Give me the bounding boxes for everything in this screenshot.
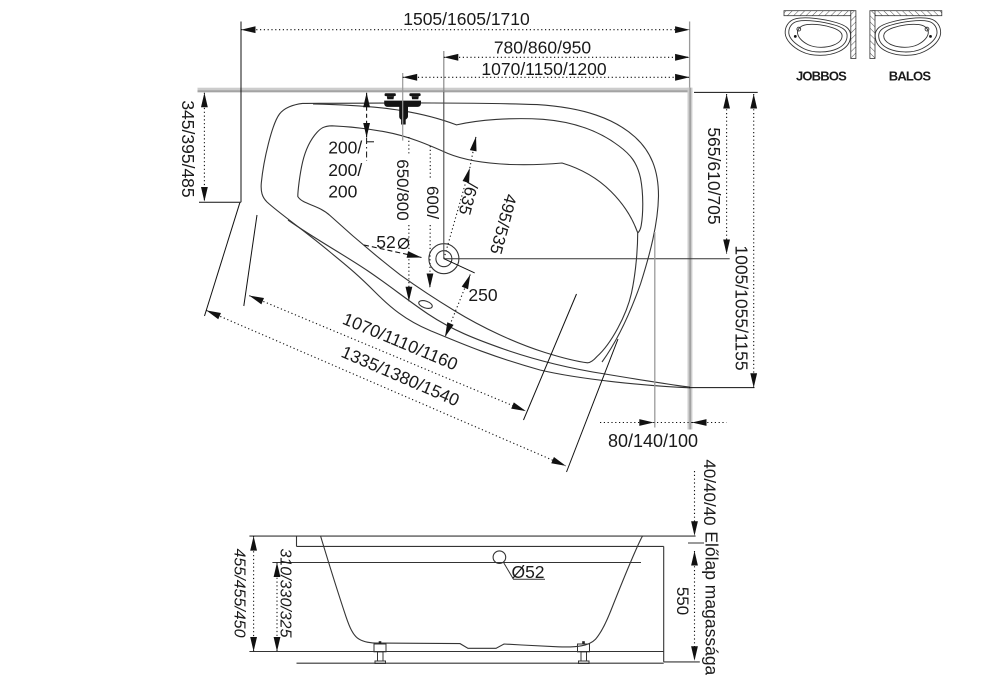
svg-text:200/: 200/ (328, 160, 362, 180)
svg-text:1005/1055/1155: 1005/1055/1155 (732, 245, 752, 370)
svg-text:600/: 600/ (423, 186, 442, 219)
svg-text:550: 550 (673, 587, 692, 615)
svg-text:200/: 200/ (328, 138, 362, 158)
svg-text:80/140/100: 80/140/100 (608, 431, 698, 451)
svg-text:250: 250 (468, 285, 497, 305)
svg-text:455/455/450: 455/455/450 (231, 549, 248, 638)
svg-text:52: 52 (376, 232, 395, 252)
svg-text:780/860/950: 780/860/950 (494, 38, 592, 58)
svg-text:1070/1150/1200: 1070/1150/1200 (481, 59, 606, 79)
svg-text:345/395/485: 345/395/485 (178, 100, 198, 197)
svg-text:Ø52: Ø52 (511, 562, 544, 582)
svg-text:310/330/325: 310/330/325 (277, 549, 294, 638)
svg-text:1505/1605/1710: 1505/1605/1710 (403, 9, 530, 29)
svg-text:565/610/705: 565/610/705 (704, 127, 724, 224)
svg-text:JOBBOS: JOBBOS (796, 69, 847, 84)
svg-text:650/800: 650/800 (393, 159, 412, 220)
svg-text:Előlap magassága: Előlap magassága (702, 531, 722, 675)
svg-text:BALOS: BALOS (889, 69, 932, 84)
svg-text:40/40/40: 40/40/40 (700, 459, 719, 525)
svg-text:200: 200 (328, 182, 357, 202)
